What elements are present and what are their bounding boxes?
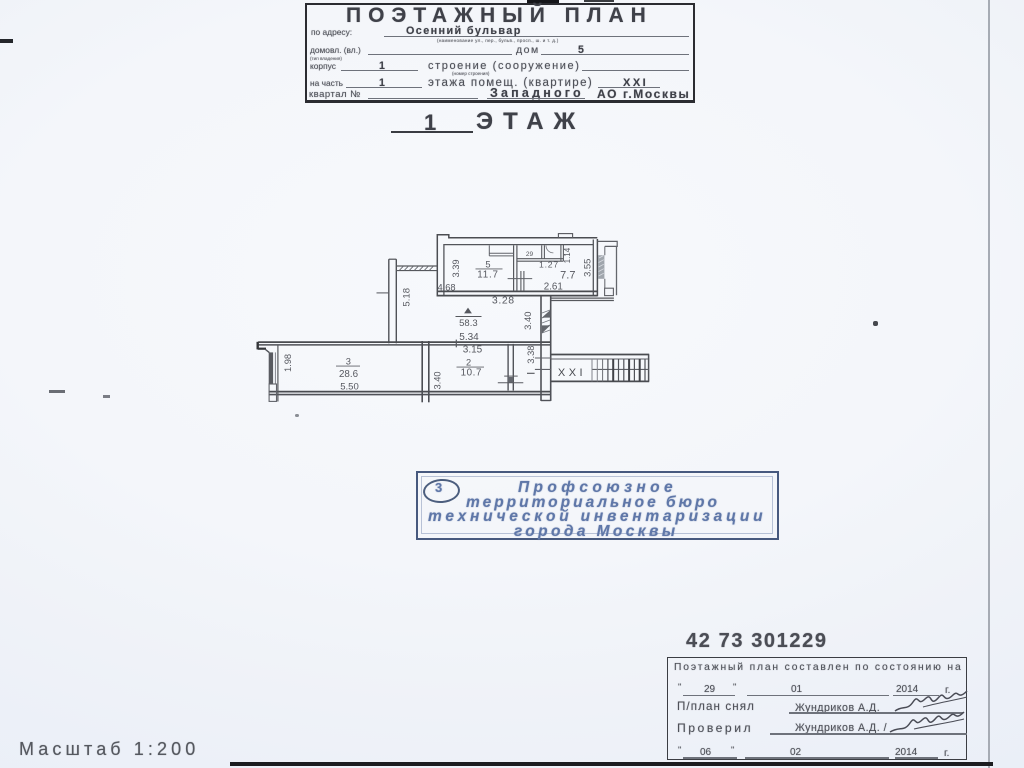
- svg-text:3.40: 3.40: [433, 371, 443, 389]
- svg-text:1.98: 1.98: [283, 354, 293, 372]
- svg-text:5: 5: [485, 259, 490, 269]
- svg-text:4.68: 4.68: [437, 282, 455, 292]
- svg-text:3.38: 3.38: [525, 345, 536, 363]
- svg-text:2.61: 2.61: [544, 281, 563, 292]
- svg-text:2: 2: [466, 358, 471, 368]
- svg-text:XXI: XXI: [558, 367, 586, 379]
- svg-text:3.39: 3.39: [451, 259, 461, 277]
- svg-text:3.40: 3.40: [522, 312, 533, 330]
- svg-text:3: 3: [346, 357, 351, 367]
- svg-text:11.7: 11.7: [477, 270, 499, 281]
- svg-text:5.34: 5.34: [459, 332, 479, 343]
- svg-text:28.6: 28.6: [339, 369, 359, 380]
- svg-text:29: 29: [526, 251, 534, 258]
- svg-text:58.3: 58.3: [459, 318, 478, 329]
- svg-text:3.15: 3.15: [463, 344, 483, 355]
- svg-text:7.7: 7.7: [560, 269, 575, 281]
- svg-text:1.27: 1.27: [539, 259, 559, 269]
- svg-text:5.18: 5.18: [402, 288, 413, 307]
- svg-text:3.55: 3.55: [582, 259, 593, 277]
- svg-text:1.14: 1.14: [563, 247, 572, 263]
- svg-text:10.7: 10.7: [461, 368, 482, 379]
- svg-text:5.50: 5.50: [340, 381, 359, 392]
- svg-text:3.28: 3.28: [492, 295, 515, 307]
